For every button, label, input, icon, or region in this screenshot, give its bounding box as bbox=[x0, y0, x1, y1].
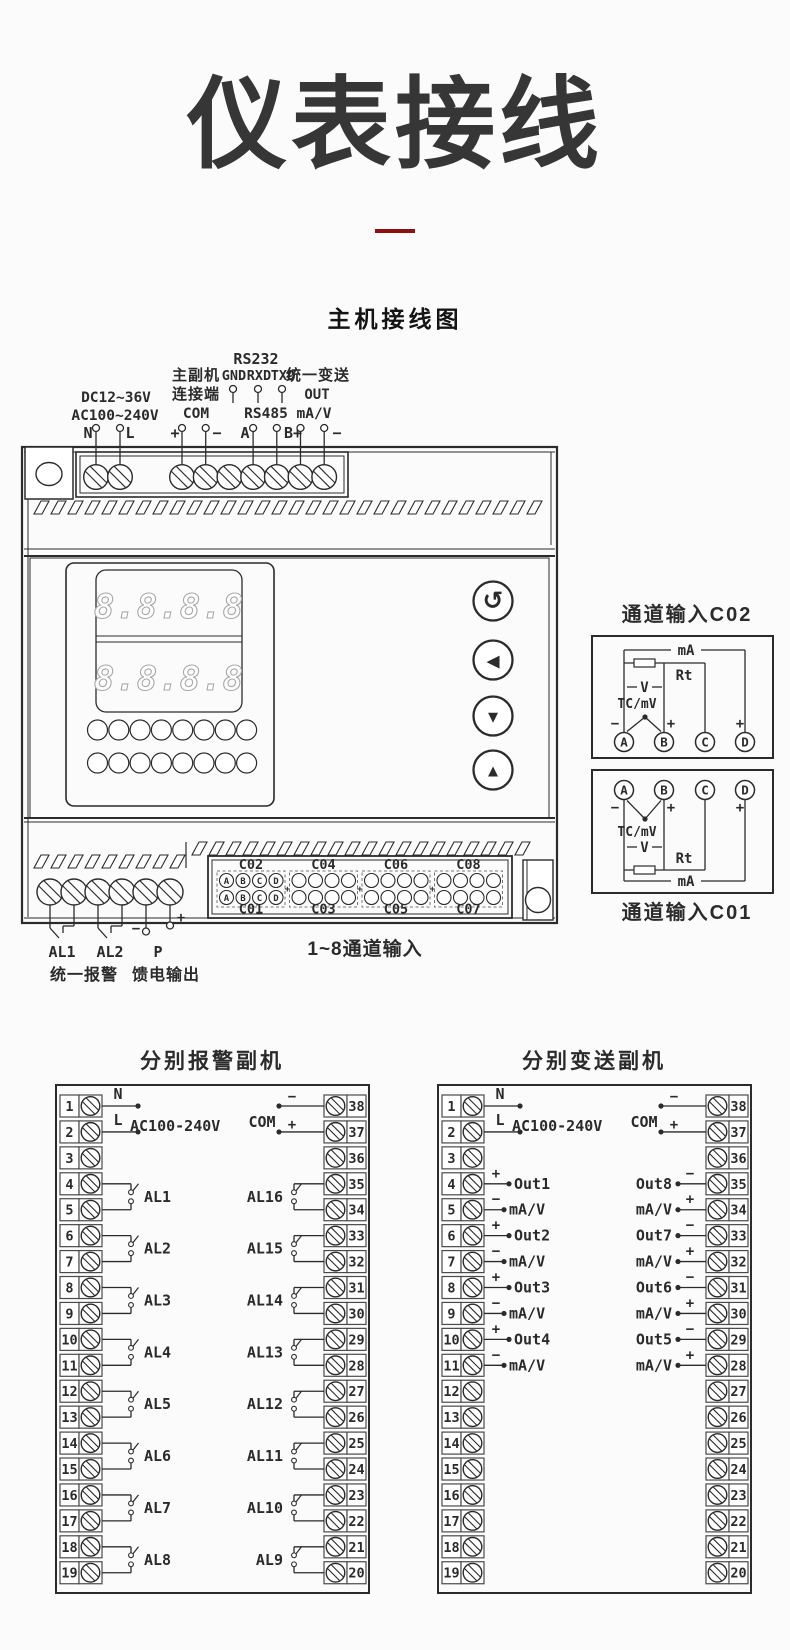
terminal-number: 1 bbox=[65, 1099, 73, 1115]
wire-label: A bbox=[240, 424, 249, 442]
al1-label: AL1 bbox=[48, 943, 75, 961]
terminal-letter: A bbox=[620, 735, 628, 750]
ma-v-label: mA/V bbox=[509, 1356, 545, 1374]
terminal-number: 2 bbox=[65, 1125, 73, 1141]
out-minus: − bbox=[686, 1166, 694, 1182]
feed-output-label: 馈电输出 bbox=[132, 965, 200, 984]
page: 仪表接线 主机接线图 RS232主副机连接端GNDRXDTXD统一变送OUTDC… bbox=[0, 0, 790, 1650]
terminal-number: 31 bbox=[348, 1281, 364, 1297]
terminal-number: 33 bbox=[730, 1229, 746, 1245]
terminal-number: 34 bbox=[348, 1203, 364, 1219]
terminal-number: 36 bbox=[348, 1151, 364, 1167]
terminal-number: 18 bbox=[443, 1540, 459, 1556]
p-minus-label: − bbox=[132, 921, 140, 937]
relay-label: AL5 bbox=[144, 1395, 171, 1413]
com-minus: − bbox=[288, 1089, 296, 1105]
bottom-output-terminals bbox=[37, 879, 183, 905]
terminal-letter: C bbox=[701, 783, 709, 798]
terminal-number: 10 bbox=[443, 1332, 459, 1348]
com-plus: + bbox=[670, 1117, 678, 1133]
terminal-number: 9 bbox=[447, 1306, 455, 1322]
terminal-number: 3 bbox=[65, 1151, 73, 1167]
terminal-number: 15 bbox=[61, 1462, 77, 1478]
terminal-number: 19 bbox=[61, 1566, 77, 1582]
terminal-number: 32 bbox=[730, 1255, 746, 1271]
p-label: P bbox=[153, 943, 162, 961]
terminal-number: 37 bbox=[730, 1125, 746, 1141]
left-icon: ◀ bbox=[486, 652, 500, 671]
terminal-number: 35 bbox=[730, 1177, 746, 1193]
terminal-letter: A bbox=[620, 783, 628, 798]
minus-label: − bbox=[611, 800, 619, 816]
pin-letter: D bbox=[273, 894, 279, 904]
din-rail-bottom-left bbox=[34, 855, 185, 868]
terminal-number: 38 bbox=[348, 1099, 364, 1115]
top-terminal-labels: RS232主副机连接端GNDRXDTXD统一变送OUTDC12~36VAC100… bbox=[71, 350, 350, 442]
plus-label: + bbox=[736, 716, 744, 732]
out-label: Out1 bbox=[514, 1175, 550, 1193]
terminal-letter: B bbox=[660, 735, 668, 750]
terminal-number: 20 bbox=[348, 1566, 364, 1582]
out-label: Out8 bbox=[636, 1175, 672, 1193]
rs232-pin-label: RXD bbox=[247, 368, 271, 384]
panel-buttons: ↺◀▼▲ bbox=[474, 582, 513, 790]
relay-label: AL15 bbox=[247, 1240, 283, 1258]
terminal-number: 10 bbox=[61, 1332, 77, 1348]
ma-v-label: mA/V bbox=[509, 1253, 545, 1271]
channel-input-box-c01: 通道输入C01ABCDmARtVTC/mV−++ bbox=[592, 770, 773, 924]
out-plus: + bbox=[492, 1218, 500, 1234]
out-label: Out7 bbox=[636, 1227, 672, 1245]
relay-label: AL7 bbox=[144, 1499, 171, 1517]
out-plus: + bbox=[686, 1244, 694, 1260]
terminal-number: 13 bbox=[443, 1410, 459, 1426]
terminal-number: 28 bbox=[348, 1358, 364, 1374]
transmit-slave-diagram: 分别变送副机1382373364355346337328319301029112… bbox=[438, 1049, 751, 1593]
terminal-number: 7 bbox=[447, 1255, 455, 1271]
terminal-number: 18 bbox=[61, 1540, 77, 1556]
rs232-label: RS232 bbox=[233, 350, 278, 368]
com-plus: + bbox=[288, 1117, 296, 1133]
terminal-number: 34 bbox=[730, 1203, 746, 1219]
relay-contacts: AL1AL16AL2AL15AL3AL14AL4AL13AL5AL12AL6AL… bbox=[102, 1184, 324, 1573]
com-wires: COM−+ bbox=[630, 1089, 706, 1135]
up-button: ▲ bbox=[474, 751, 513, 790]
terminal-number: 6 bbox=[65, 1229, 73, 1245]
terminal-number: 3 bbox=[447, 1151, 455, 1167]
terminal-number: 2 bbox=[447, 1125, 455, 1141]
ac-power-label: AC100~240V bbox=[71, 408, 159, 424]
pin-letter: B bbox=[240, 877, 246, 887]
relay-label: AL3 bbox=[144, 1291, 171, 1309]
channel-box-title: 通道输入C02 bbox=[622, 602, 753, 626]
terminal-number: 35 bbox=[348, 1177, 364, 1193]
unified-transmit-label: 统一变送 bbox=[286, 366, 350, 384]
terminal-number: 36 bbox=[730, 1151, 746, 1167]
terminal-number: 8 bbox=[65, 1281, 73, 1297]
com-minus: − bbox=[670, 1089, 678, 1105]
rs485-label: RS485 bbox=[244, 406, 288, 422]
pin-letter: D bbox=[273, 877, 279, 887]
relay-label: AL4 bbox=[144, 1343, 171, 1361]
wire-label: L bbox=[125, 424, 134, 442]
terminal-number: 12 bbox=[443, 1384, 459, 1400]
ma-v-label: mA/V bbox=[636, 1304, 672, 1322]
com-label: COM bbox=[183, 406, 209, 422]
l-label: L bbox=[495, 1111, 504, 1129]
cycle-icon: ↺ bbox=[483, 587, 504, 615]
terminal-number: 15 bbox=[443, 1462, 459, 1478]
terminal-number: 19 bbox=[443, 1566, 459, 1582]
n-label: N bbox=[495, 1085, 504, 1103]
com-wires: COM−+ bbox=[248, 1089, 324, 1135]
terminal-number: 38 bbox=[730, 1099, 746, 1115]
terminal-number: 24 bbox=[348, 1462, 364, 1478]
alarm-slave-diagram: 分别报警副机1382373364355346337328319301029112… bbox=[56, 1049, 369, 1593]
channel-group-label: C04 bbox=[311, 857, 335, 873]
din-rail-bottom-right bbox=[192, 842, 530, 855]
terminal-number: 11 bbox=[443, 1358, 459, 1374]
front-panel: 8.8.8.88.8.8.8 bbox=[30, 558, 549, 818]
l-label: L bbox=[113, 1111, 122, 1129]
terminal-number: 12 bbox=[61, 1384, 77, 1400]
down-icon: ▼ bbox=[485, 708, 502, 727]
pin-letter: C bbox=[257, 894, 262, 904]
ma-label: mA bbox=[678, 643, 695, 659]
terminal-number: 20 bbox=[730, 1566, 746, 1582]
pin-letter: A bbox=[224, 877, 230, 887]
ma-label: mA bbox=[678, 874, 695, 890]
slave-title: 分别变送副机 bbox=[522, 1049, 666, 1073]
terminal-number: 33 bbox=[348, 1229, 364, 1245]
led-indicators bbox=[88, 720, 257, 773]
relay-label: AL12 bbox=[247, 1395, 283, 1413]
terminal-number: 26 bbox=[730, 1410, 746, 1426]
terminal-number: 31 bbox=[730, 1281, 746, 1297]
main-unit: RS232主副机连接端GNDRXDTXD统一变送OUTDC12~36VAC100… bbox=[22, 350, 557, 984]
terminal-number: 22 bbox=[730, 1514, 746, 1530]
down-button: ▼ bbox=[474, 697, 513, 736]
relay-label: AL16 bbox=[247, 1188, 283, 1206]
out-minus: − bbox=[492, 1192, 500, 1208]
alarm-output-wires: −+AL1AL2P统一报警馈电输出 bbox=[48, 905, 200, 984]
out-label: Out4 bbox=[514, 1330, 550, 1348]
dc-power-label: DC12~36V bbox=[81, 390, 151, 406]
relay-label: AL8 bbox=[144, 1551, 171, 1569]
ma-v-label: mA/V bbox=[636, 1201, 672, 1219]
terminal-number: 9 bbox=[65, 1306, 73, 1322]
terminal-number: 8 bbox=[447, 1281, 455, 1297]
terminal-number: 27 bbox=[730, 1384, 746, 1400]
terminal-number: 4 bbox=[65, 1177, 73, 1193]
pin-letter: A bbox=[224, 894, 230, 904]
channels-caption: 1~8通道输入 bbox=[307, 937, 422, 960]
terminal-number: 23 bbox=[730, 1488, 746, 1504]
terminal-number: 29 bbox=[348, 1332, 364, 1348]
terminal-number: 4 bbox=[447, 1177, 455, 1193]
terminal-number: 23 bbox=[348, 1488, 364, 1504]
terminal-number: 28 bbox=[730, 1358, 746, 1374]
up-icon: ▲ bbox=[485, 762, 502, 781]
channel-group-label: C06 bbox=[384, 857, 408, 873]
top-terminal-strip bbox=[76, 452, 348, 497]
channel-connector: C02C01AABBCCDD+C04C03+C06C05+C08C07 bbox=[208, 856, 512, 918]
out-plus: + bbox=[492, 1270, 500, 1286]
terminal-number: 13 bbox=[61, 1410, 77, 1426]
terminal-number: 6 bbox=[447, 1229, 455, 1245]
relay-label: AL9 bbox=[256, 1551, 283, 1569]
terminal-number: 25 bbox=[730, 1436, 746, 1452]
din-rail-top bbox=[34, 501, 542, 514]
rs232-pin-label: GND bbox=[222, 368, 246, 384]
terminal-number: 32 bbox=[348, 1255, 364, 1271]
wire-label: − bbox=[212, 424, 221, 442]
rt-label: Rt bbox=[676, 668, 693, 684]
supply-voltage-label: AC100-240V bbox=[130, 1117, 220, 1135]
terminal-number: 24 bbox=[730, 1462, 746, 1478]
terminal-number: 30 bbox=[348, 1306, 364, 1322]
out-label: OUT bbox=[304, 387, 329, 403]
minus-label: − bbox=[611, 716, 619, 732]
out-label: Out5 bbox=[636, 1330, 672, 1348]
channel-group-label: C08 bbox=[456, 857, 480, 873]
terminal-number: 16 bbox=[443, 1488, 459, 1504]
out-minus: − bbox=[492, 1347, 500, 1363]
terminal-number: 22 bbox=[348, 1514, 364, 1530]
terminal-number: 26 bbox=[348, 1410, 364, 1426]
com-label: COM bbox=[248, 1113, 275, 1131]
terminal-number: 37 bbox=[348, 1125, 364, 1141]
terminal-number: 25 bbox=[348, 1436, 364, 1452]
v-label: V bbox=[640, 680, 649, 696]
master-slave-label: 主副机 bbox=[172, 366, 220, 384]
p-plus-label: + bbox=[177, 910, 185, 926]
relay-label: AL10 bbox=[247, 1499, 283, 1517]
left-button: ◀ bbox=[474, 641, 513, 680]
terminal-number: 16 bbox=[61, 1488, 77, 1504]
terminal-letter: D bbox=[741, 783, 749, 798]
ma-v-label: mA/V bbox=[509, 1304, 545, 1322]
channels-1-8-label: 1~8通道输入 bbox=[307, 937, 422, 960]
cycle-button: ↺ bbox=[474, 582, 513, 621]
out-minus: − bbox=[492, 1244, 500, 1260]
master-slave-label: 连接端 bbox=[172, 385, 220, 403]
out-label: Out3 bbox=[514, 1279, 550, 1297]
terminal-number: 5 bbox=[65, 1203, 73, 1219]
terminal-number: 7 bbox=[65, 1255, 73, 1271]
pin-letter: B bbox=[240, 894, 246, 904]
out-minus: − bbox=[686, 1321, 694, 1337]
relay-label: AL2 bbox=[144, 1240, 171, 1258]
terminal-number: 5 bbox=[447, 1203, 455, 1219]
out-label: Out2 bbox=[514, 1227, 550, 1245]
wire-label: N bbox=[83, 424, 92, 442]
tc-mv-label: TC/mV bbox=[617, 697, 656, 712]
channel-box-title: 通道输入C01 bbox=[622, 900, 753, 924]
output-wires: +Out1−mA/VOut8−mA/V++Out2−mA/VOut7−mA/V+… bbox=[484, 1166, 706, 1375]
terminal-number: 21 bbox=[730, 1540, 746, 1556]
relay-label: AL13 bbox=[247, 1343, 283, 1361]
v-label: V bbox=[640, 840, 649, 856]
supply-voltage-label: AC100-240V bbox=[512, 1117, 602, 1135]
out-label: Out6 bbox=[636, 1279, 672, 1297]
terminal-number: 14 bbox=[61, 1436, 77, 1452]
seven-segment-display-upper: 8.8.8.8 bbox=[94, 587, 244, 627]
terminal-letter: C bbox=[701, 735, 709, 750]
com-label: COM bbox=[630, 1113, 657, 1131]
power-wires: NLAC100-240V bbox=[484, 1085, 602, 1135]
out-plus: + bbox=[686, 1347, 694, 1363]
relay-label: AL11 bbox=[247, 1447, 283, 1465]
seven-segment-display-lower: 8.8.8.8 bbox=[94, 659, 244, 699]
rt-label: Rt bbox=[676, 851, 693, 867]
terminal-number: 27 bbox=[348, 1384, 364, 1400]
plus-label: + bbox=[667, 800, 675, 816]
al2-label: AL2 bbox=[96, 943, 123, 961]
power-wires: NLAC100-240V bbox=[102, 1085, 220, 1135]
terminal-number: 14 bbox=[443, 1436, 459, 1452]
plus-label: + bbox=[667, 716, 675, 732]
out-plus: + bbox=[492, 1321, 500, 1337]
terminal-letter: B bbox=[660, 783, 668, 798]
terminal-number: 30 bbox=[730, 1306, 746, 1322]
rs232-pin-stubs bbox=[230, 386, 286, 404]
terminal-number: 29 bbox=[730, 1332, 746, 1348]
relay-label: AL1 bbox=[144, 1188, 171, 1206]
wiring-diagram: RS232主副机连接端GNDRXDTXD统一变送OUTDC12~36VAC100… bbox=[0, 0, 790, 1650]
ma-v-label: mA/V bbox=[509, 1201, 545, 1219]
out-plus: + bbox=[686, 1295, 694, 1311]
relay-label: AL14 bbox=[247, 1291, 283, 1309]
slave-title: 分别报警副机 bbox=[140, 1049, 284, 1073]
wire-label: − bbox=[332, 424, 341, 442]
channel-group-label: C02 bbox=[239, 857, 263, 873]
plus-label: + bbox=[736, 800, 744, 816]
out-plus: + bbox=[686, 1192, 694, 1208]
terminal-number: 17 bbox=[443, 1514, 459, 1530]
out-minus: − bbox=[686, 1270, 694, 1286]
tc-mv-label: TC/mV bbox=[617, 825, 656, 840]
terminal-number: 11 bbox=[61, 1358, 77, 1374]
out-minus: − bbox=[686, 1218, 694, 1234]
pin-letter: C bbox=[257, 877, 262, 887]
ma-v-label: mA/V bbox=[636, 1356, 672, 1374]
relay-label: AL6 bbox=[144, 1447, 171, 1465]
n-label: N bbox=[113, 1085, 122, 1103]
out-plus: + bbox=[492, 1166, 500, 1182]
terminal-number: 21 bbox=[348, 1540, 364, 1556]
terminal-number: 1 bbox=[447, 1099, 455, 1115]
terminal-number: 17 bbox=[61, 1514, 77, 1530]
ma-v-label: mA/V bbox=[297, 406, 332, 422]
channel-input-box-c02: 通道输入C02ABCDmARtVTC/mV−++ bbox=[592, 602, 773, 758]
terminal-letter: D bbox=[741, 735, 749, 750]
out-minus: − bbox=[492, 1295, 500, 1311]
ma-v-label: mA/V bbox=[636, 1253, 672, 1271]
unified-alarm-label: 统一报警 bbox=[50, 965, 118, 984]
